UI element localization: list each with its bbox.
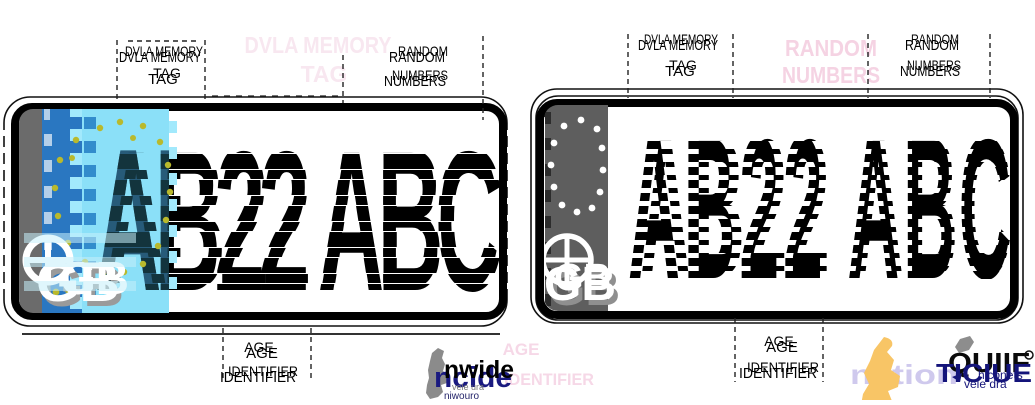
svg-text:niwouro: niwouro — [444, 391, 479, 400]
svg-text:TAG: TAG — [301, 61, 348, 87]
svg-text:NUMBERS: NUMBERS — [782, 62, 880, 88]
svg-text:DVLA MEMORY: DVLA MEMORY — [125, 43, 204, 59]
svg-text:TAG: TAG — [669, 57, 697, 73]
svg-text:AB22 ABC: AB22 ABC — [640, 99, 1015, 317]
svg-text:vele dra: vele dra — [964, 377, 1007, 391]
svg-text:GB: GB — [554, 257, 611, 299]
svg-text:RANDOM: RANDOM — [785, 35, 877, 61]
svg-text:IDENTIFIER: IDENTIFIER — [747, 359, 819, 375]
svg-text:NUMBERS: NUMBERS — [392, 67, 448, 83]
svg-text:RANDOM: RANDOM — [398, 43, 448, 59]
svg-text:RANDOM: RANDOM — [911, 31, 959, 47]
svg-text:AGE: AGE — [764, 333, 794, 349]
svg-text:NUMBERS: NUMBERS — [907, 57, 961, 73]
svg-text:TAG: TAG — [153, 65, 181, 81]
svg-text:IDENTIFIER: IDENTIFIER — [228, 363, 298, 379]
svg-text:IDENTIFIER: IDENTIFIER — [504, 370, 594, 389]
svg-text:nwide: nwide — [444, 356, 514, 384]
svg-text:DVLA MEMORY: DVLA MEMORY — [644, 31, 718, 47]
svg-text:DVLA MEMORY: DVLA MEMORY — [245, 32, 392, 58]
svg-text:AGE: AGE — [244, 339, 274, 355]
